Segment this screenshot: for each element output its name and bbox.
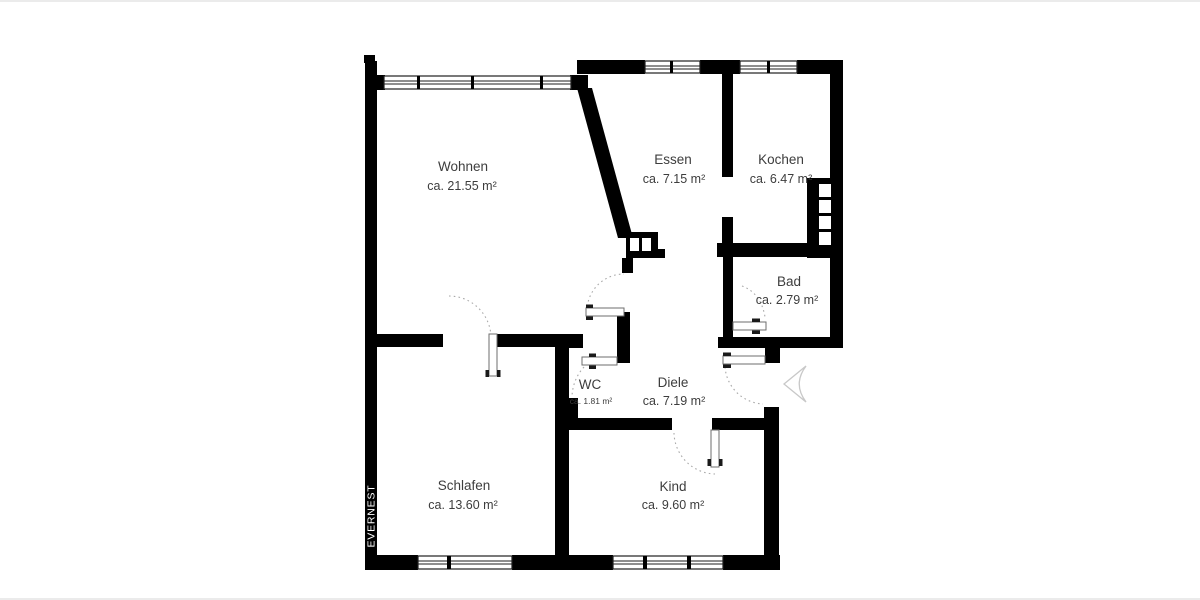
brand-watermark: EVERNEST [366, 485, 378, 548]
floorplan-drawing: Wohnen ca. 21.55 m² Essen ca. 7.15 m² Ko… [0, 0, 1200, 600]
window-kochen [740, 61, 797, 73]
window-kind [613, 556, 723, 569]
window-wohnen [384, 76, 571, 89]
room-name: Bad [777, 274, 801, 289]
room-area: ca. 9.60 m² [642, 498, 705, 512]
door-entrance [723, 353, 765, 405]
room-label-kochen: Kochen ca. 6.47 m² [750, 152, 813, 186]
room-label-diele: Diele ca. 7.19 m² [643, 375, 706, 408]
room-name: WC [579, 377, 602, 392]
room-area: ca. 7.15 m² [643, 172, 706, 186]
window-schlafen [418, 556, 512, 569]
room-name: Schlafen [438, 478, 491, 493]
room-area: ca. 2.79 m² [756, 293, 819, 307]
room-label-wc: WC ca. 1.81 m² [570, 377, 613, 406]
room-name: Kind [659, 479, 686, 494]
room-area: ca. 13.60 m² [428, 498, 497, 512]
door-schlafen [449, 296, 501, 377]
room-name: Essen [654, 152, 692, 167]
room-label-schlafen: Schlafen ca. 13.60 m² [428, 478, 497, 512]
window-essen [645, 61, 700, 73]
room-name: Diele [658, 375, 689, 390]
doors [449, 274, 766, 474]
room-label-wohnen: Wohnen ca. 21.55 m² [427, 159, 496, 193]
installation-shaft [807, 178, 833, 258]
room-area: ca. 7.19 m² [643, 394, 706, 408]
floorplan-page: Wohnen ca. 21.55 m² Essen ca. 7.15 m² Ko… [0, 0, 1200, 600]
door-kind [674, 430, 723, 474]
room-name: Wohnen [438, 159, 488, 174]
image-top-border [0, 0, 1200, 2]
room-area: ca. 21.55 m² [427, 179, 496, 193]
door-wohnen [586, 274, 624, 320]
room-name: Kochen [758, 152, 804, 167]
room-label-kind: Kind ca. 9.60 m² [642, 479, 705, 512]
room-area: ca. 1.81 m² [570, 396, 613, 406]
entrance-arrow-icon [784, 366, 806, 402]
room-area: ca. 6.47 m² [750, 172, 813, 186]
room-label-essen: Essen ca. 7.15 m² [643, 152, 706, 186]
room-label-bad: Bad ca. 2.79 m² [756, 274, 819, 307]
